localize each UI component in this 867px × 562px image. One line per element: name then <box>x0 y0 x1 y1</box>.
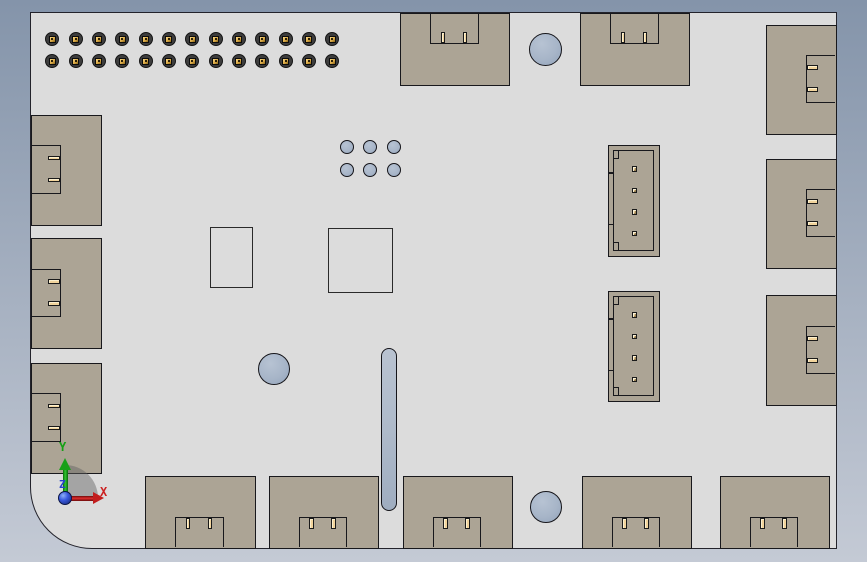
left-connector-2[interactable] <box>31 238 102 349</box>
header-pin-body <box>72 36 79 43</box>
header-pin-contact <box>120 59 125 64</box>
header-pin-body <box>212 58 219 65</box>
header-pin-contact <box>306 59 311 64</box>
header-pin <box>302 32 316 46</box>
latch-slot-divider <box>609 224 613 226</box>
header-pin-bore <box>145 60 147 62</box>
header-pin-bore <box>331 60 333 62</box>
header-pin-body <box>329 58 336 65</box>
header-pin-contact <box>236 37 241 42</box>
keying-notch <box>613 242 619 251</box>
connector-notch <box>806 326 835 375</box>
connector-pin <box>632 188 638 194</box>
header-pin-body <box>212 36 219 43</box>
connector-pin <box>48 426 60 431</box>
keying-notch <box>613 387 619 396</box>
latch-slot-divider <box>609 172 613 174</box>
mounting-hole-top[interactable] <box>529 33 562 66</box>
via-hole[interactable] <box>387 140 401 154</box>
connector-pin <box>807 336 819 341</box>
top-connector-2[interactable] <box>580 13 690 86</box>
connector-pin <box>632 166 638 172</box>
header-pin-body <box>305 58 312 65</box>
pcb-board[interactable] <box>30 12 837 549</box>
header-pin-body <box>119 36 126 43</box>
header-pin-bore <box>98 60 100 62</box>
header-pin <box>232 32 246 46</box>
right-connector-1[interactable] <box>766 25 837 135</box>
header-pin-contact <box>96 59 101 64</box>
right-connector-3[interactable] <box>766 295 837 406</box>
left-connector-3[interactable] <box>31 363 102 474</box>
header-pin-contact <box>330 37 335 42</box>
header-pin-bore <box>215 60 217 62</box>
header-pin-body <box>282 36 289 43</box>
header-pin-contact <box>330 59 335 64</box>
header-pin-contact <box>260 59 265 64</box>
header-pin <box>209 32 223 46</box>
connector-pin <box>463 32 468 44</box>
header-pin <box>92 32 106 46</box>
header-pin-bore <box>285 38 287 40</box>
connector-pin <box>443 518 448 530</box>
connector-pin <box>807 199 819 204</box>
connector-pin <box>208 518 213 530</box>
header-pin-body <box>259 58 266 65</box>
header-pin-bore <box>191 38 193 40</box>
bottom-connector-3[interactable] <box>403 476 513 549</box>
via-hole[interactable] <box>340 140 354 154</box>
header-pin <box>69 32 83 46</box>
board-slot[interactable] <box>381 348 397 511</box>
header-pin-bore <box>215 38 217 40</box>
header-pin-contact <box>213 37 218 42</box>
header-pin-contact <box>50 37 55 42</box>
connector-pin <box>632 334 638 340</box>
connector-notch <box>32 145 61 194</box>
connector-notch <box>806 55 835 104</box>
connector-pin <box>621 32 626 44</box>
jst-connector-2[interactable] <box>608 291 660 402</box>
right-connector-2[interactable] <box>766 159 837 269</box>
header-pin-bore <box>261 38 263 40</box>
connector-pin <box>48 156 60 161</box>
header-pin-body <box>165 58 172 65</box>
header-pin-body <box>235 58 242 65</box>
header-pin-body <box>142 58 149 65</box>
connector-notch <box>175 517 224 547</box>
x-axis-arrow <box>70 496 94 501</box>
header-pin-body <box>305 36 312 43</box>
y-axis-arrowhead <box>59 458 71 470</box>
connector-pin <box>622 518 627 530</box>
header-pin-body <box>95 58 102 65</box>
ic-outline-large[interactable] <box>328 228 393 293</box>
connector-pin <box>807 65 819 70</box>
header-pin-body <box>235 36 242 43</box>
header-pin-contact <box>166 37 171 42</box>
header-pin <box>279 54 293 68</box>
connector-pin <box>309 518 314 530</box>
top-connector-1[interactable] <box>400 13 510 86</box>
ic-outline-small[interactable] <box>210 227 253 288</box>
header-pin-bore <box>308 60 310 62</box>
connector-pin <box>807 358 819 363</box>
connector-pin <box>465 518 470 530</box>
header-pin-body <box>49 58 56 65</box>
via-hole[interactable] <box>363 140 377 154</box>
header-pin <box>209 54 223 68</box>
header-pin-body <box>49 36 56 43</box>
header-pin <box>139 32 153 46</box>
header-pin-body <box>72 58 79 65</box>
connector-pin <box>632 377 638 383</box>
header-pin-contact <box>73 37 78 42</box>
connector-notch <box>612 517 661 547</box>
header-pin-body <box>329 36 336 43</box>
header-pin-bore <box>75 60 77 62</box>
latch-slot-divider <box>609 370 613 372</box>
connector-pin <box>48 301 60 306</box>
header-pin-bore <box>238 60 240 62</box>
connector-pin <box>632 209 638 215</box>
latch-slot-divider <box>609 318 613 320</box>
left-connector-1[interactable] <box>31 115 102 226</box>
connector-pin <box>186 518 191 530</box>
bottom-connector-2[interactable] <box>269 476 379 549</box>
header-pin-contact <box>143 37 148 42</box>
connector-pin <box>760 518 765 530</box>
connector-pin <box>807 221 819 226</box>
connector-pin <box>644 518 649 530</box>
header-pin-contact <box>283 37 288 42</box>
connector-pin <box>632 231 638 237</box>
header-pin-contact <box>190 59 195 64</box>
header-pin-contact <box>236 59 241 64</box>
header-pin-body <box>95 36 102 43</box>
header-pin <box>279 32 293 46</box>
header-pin-bore <box>191 60 193 62</box>
header-pin-bore <box>98 38 100 40</box>
header-pin-body <box>119 58 126 65</box>
header-pin-contact <box>73 59 78 64</box>
header-pin-contact <box>306 37 311 42</box>
keying-notch <box>613 296 619 305</box>
connector-pin <box>782 518 787 530</box>
cad-viewport: Y X Z <box>0 0 867 562</box>
header-pin <box>139 54 153 68</box>
connector-notch <box>32 393 61 442</box>
header-pin-bore <box>285 60 287 62</box>
connector-pin <box>48 404 60 409</box>
via-hole[interactable] <box>363 163 377 177</box>
header-pin <box>69 54 83 68</box>
header-pin-bore <box>145 38 147 40</box>
header-pin-bore <box>51 38 53 40</box>
connector-pin <box>331 518 336 530</box>
header-pin-body <box>189 58 196 65</box>
header-pin-contact <box>96 37 101 42</box>
connector-notch <box>299 517 348 547</box>
connector-notch <box>433 517 482 547</box>
connector-pin <box>48 279 60 284</box>
header-pin-contact <box>50 59 55 64</box>
header-pin-body <box>142 36 149 43</box>
header-pin-bore <box>308 38 310 40</box>
connector-pin <box>632 355 638 361</box>
mounting-hole-middle[interactable] <box>258 353 290 385</box>
header-pin-bore <box>51 60 53 62</box>
x-axis-label: X <box>100 485 107 499</box>
header-pin-bore <box>261 60 263 62</box>
header-pin-contact <box>120 37 125 42</box>
connector-notch <box>610 14 659 44</box>
header-pin-bore <box>238 38 240 40</box>
bottom-connector-1[interactable] <box>145 476 256 549</box>
connector-pin <box>48 178 60 183</box>
jst-connector-1[interactable] <box>608 145 660 257</box>
header-pin-bore <box>121 60 123 62</box>
connector-notch <box>750 517 799 547</box>
header-pin-bore <box>168 38 170 40</box>
header-pin-contact <box>190 37 195 42</box>
header-pin-contact <box>166 59 171 64</box>
header-pin-contact <box>143 59 148 64</box>
header-pin-bore <box>75 38 77 40</box>
header-pin-body <box>259 36 266 43</box>
header-pin-body <box>282 58 289 65</box>
connector-notch <box>32 269 61 318</box>
header-pin-contact <box>260 37 265 42</box>
mounting-hole-bottom[interactable] <box>530 491 562 523</box>
keying-notch <box>613 150 619 159</box>
bottom-connector-4[interactable] <box>582 476 692 549</box>
z-axis-label: Z <box>59 478 66 491</box>
header-pin-bore <box>121 38 123 40</box>
connector-pin <box>632 312 638 318</box>
z-origin-sphere <box>58 491 72 505</box>
connector-notch <box>430 14 479 44</box>
bottom-connector-5[interactable] <box>720 476 830 549</box>
connector-pin <box>643 32 648 44</box>
connector-notch <box>806 189 835 238</box>
header-pin-body <box>189 36 196 43</box>
header-pin-bore <box>331 38 333 40</box>
header-pin-contact <box>283 59 288 64</box>
header-pin-body <box>165 36 172 43</box>
via-hole[interactable] <box>387 163 401 177</box>
header-pin-contact <box>213 59 218 64</box>
connector-pin <box>441 32 446 44</box>
y-axis-label: Y <box>59 440 66 454</box>
via-hole[interactable] <box>340 163 354 177</box>
header-pin <box>162 32 176 46</box>
header-pin-bore <box>168 60 170 62</box>
connector-pin <box>807 87 819 92</box>
